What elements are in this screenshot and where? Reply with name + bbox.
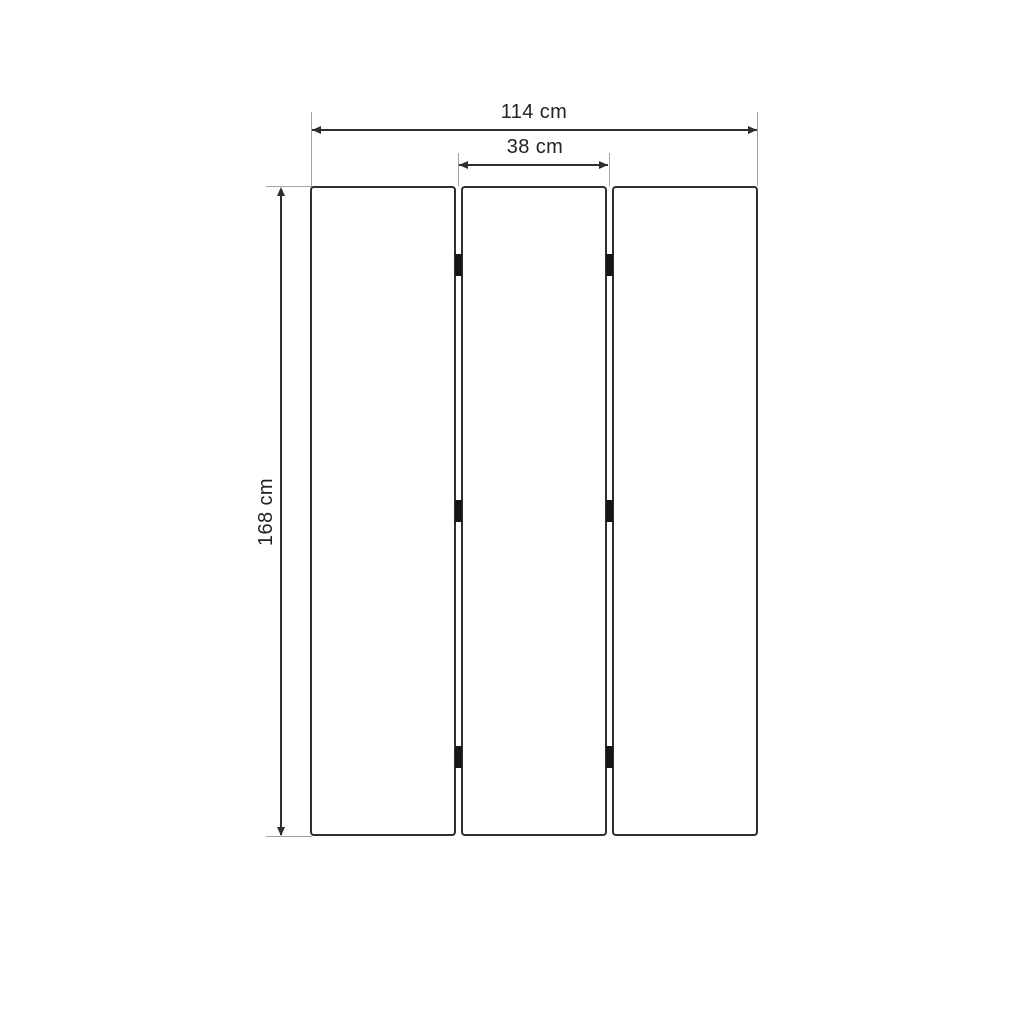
- panel-center: [461, 186, 607, 836]
- extension-line: [266, 836, 312, 838]
- dimension-line: [459, 164, 608, 166]
- extension-line: [311, 112, 313, 186]
- panel-width-label: 38 cm: [455, 136, 615, 159]
- hinge: [606, 500, 613, 522]
- arrowhead-right-icon: [599, 161, 608, 169]
- arrowhead-up-icon: [277, 187, 285, 196]
- arrowhead-left-icon: [312, 126, 321, 134]
- height-label: 168 cm: [255, 467, 277, 557]
- hinge: [455, 254, 462, 276]
- extension-line: [757, 112, 759, 186]
- arrowhead-left-icon: [459, 161, 468, 169]
- total-width-label: 114 cm: [454, 101, 614, 124]
- extension-line: [266, 186, 312, 188]
- hinge: [606, 746, 613, 768]
- panel-right: [612, 186, 758, 836]
- hinge: [606, 254, 613, 276]
- dimension-line: [280, 189, 282, 835]
- arrowhead-down-icon: [277, 827, 285, 836]
- arrowhead-right-icon: [748, 126, 757, 134]
- dimension-diagram: 114 cm 38 cm 168 cm: [0, 0, 1024, 1024]
- hinge: [455, 500, 462, 522]
- panel-left: [310, 186, 456, 836]
- hinge: [455, 746, 462, 768]
- dimension-line: [312, 129, 757, 131]
